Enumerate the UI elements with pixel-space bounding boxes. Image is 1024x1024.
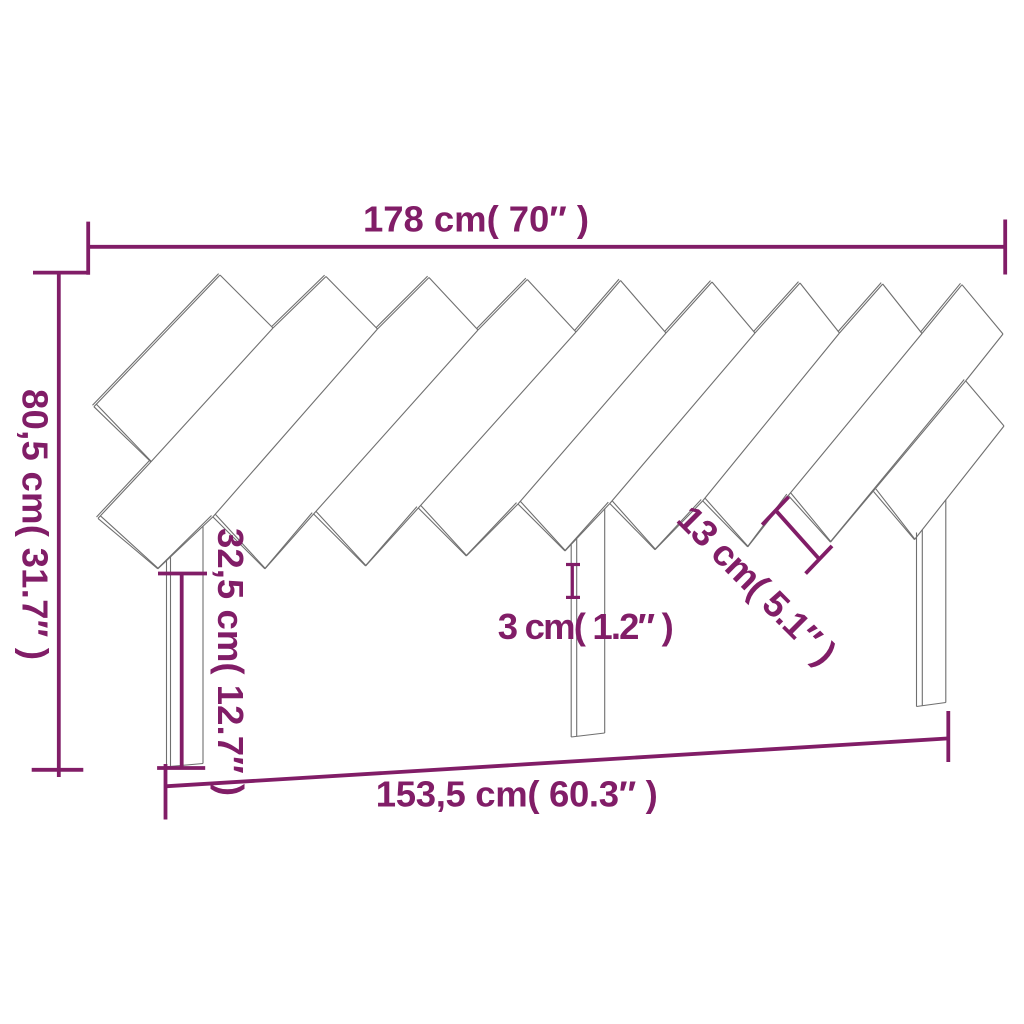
svg-text:178 cm( 70″ ): 178 cm( 70″ ) <box>363 199 589 240</box>
svg-text:153,5 cm( 60.3″ ): 153,5 cm( 60.3″ ) <box>376 774 658 815</box>
svg-text:80,5 cm( 31.7″ ): 80,5 cm( 31.7″ ) <box>14 389 55 660</box>
svg-text:32,5 cm( 12.7″ ): 32,5 cm( 12.7″ ) <box>210 528 251 796</box>
svg-text:3 cm( 1.2″ ): 3 cm( 1.2″ ) <box>498 606 674 647</box>
